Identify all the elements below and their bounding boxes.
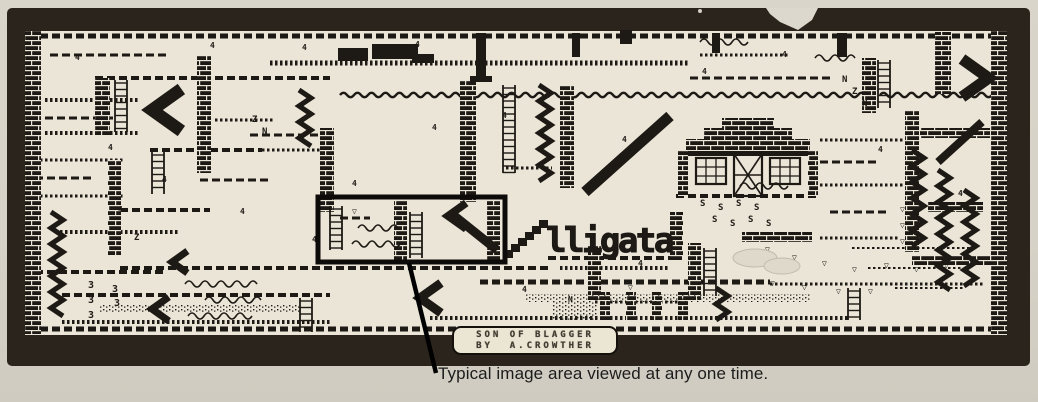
collectible-icon: ▽	[836, 287, 841, 296]
map-glyph: 3	[88, 310, 94, 321]
house-roof-step	[722, 118, 774, 129]
title-badge: SON OF BLAGGER BY A.CROWTHER	[452, 326, 618, 355]
map-glyph: N	[862, 99, 867, 109]
block	[372, 44, 418, 59]
map-glyph: 4	[522, 285, 527, 294]
map-glyph: 3	[114, 298, 120, 309]
map-glyph: 4	[622, 135, 627, 144]
alligata-logo-text: lligata	[546, 221, 673, 261]
map-glyph: S	[748, 215, 753, 225]
block	[476, 33, 486, 79]
map-glyph: 4	[240, 207, 245, 216]
block	[412, 54, 434, 63]
collectible-icon: ▽	[352, 207, 357, 216]
map-glyph: Z	[252, 115, 258, 125]
map-glyph: 4	[75, 53, 80, 62]
brick-column	[935, 32, 951, 94]
map-glyph: 4	[782, 50, 787, 59]
brick-column	[25, 31, 41, 334]
map-glyph: N	[568, 295, 573, 304]
map-glyph: 4	[432, 123, 437, 132]
scanned-map-page: ▽▽▽▽▽▽▽▽▽▽▽▽▽▽▽▽SSSSSSSSZNNZNZN333334444…	[0, 0, 1038, 402]
rubble-texture	[100, 304, 300, 313]
map-glyph: Z	[852, 87, 858, 97]
house-roof-step	[686, 139, 810, 152]
map-glyph: S	[718, 203, 723, 213]
map-glyph: 4	[702, 67, 707, 76]
map-glyph: 3	[112, 284, 118, 295]
collectible-icon: ▽	[900, 205, 905, 214]
house-wall	[678, 151, 688, 196]
block	[338, 48, 368, 61]
map-glyph: 4	[118, 205, 123, 214]
brick-column	[197, 55, 211, 173]
brick-column	[95, 78, 110, 136]
collectible-icon: ▽	[628, 283, 633, 292]
paper-speck	[698, 9, 702, 13]
map-glyph: 4	[210, 41, 215, 50]
map-glyph: N	[262, 127, 267, 137]
house-roof-step	[704, 128, 792, 140]
collectible-icon: ▽	[900, 237, 905, 246]
map-glyph: 4	[502, 111, 507, 120]
block	[470, 76, 492, 82]
block	[837, 33, 847, 57]
collectible-icon: ▽	[868, 287, 873, 296]
map-glyph: S	[754, 203, 759, 213]
paper-emboss	[764, 258, 800, 274]
title-badge-line2: BY A.CROWTHER	[476, 341, 594, 352]
map-glyph: 3	[88, 295, 94, 306]
brick-column	[394, 200, 407, 260]
collectible-icon: ▽	[770, 279, 775, 288]
map-glyph: 4	[878, 145, 883, 154]
collectible-icon: ▽	[822, 259, 827, 268]
map-glyph: 4	[108, 143, 113, 152]
collectible-icon: ▽	[914, 265, 919, 274]
title-badge-line1: SON OF BLAGGER	[476, 330, 594, 341]
map-glyph: S	[700, 199, 705, 209]
house-wall	[808, 151, 818, 196]
map-glyph: 3	[88, 280, 94, 291]
map-glyph: S	[736, 199, 741, 209]
block	[572, 33, 580, 57]
map-glyph: 4	[415, 40, 420, 49]
map-glyph: 4	[958, 189, 963, 198]
map-glyph: Z	[134, 233, 140, 243]
collectible-icon: ▽	[944, 261, 949, 270]
brick-bar	[742, 232, 812, 242]
map-glyph: 4	[162, 175, 167, 184]
brick-column	[670, 212, 683, 260]
map-glyph: 4	[302, 43, 307, 52]
collectible-icon: ▽	[802, 283, 807, 292]
rubble-texture	[552, 300, 598, 320]
caption-text: Typical image area viewed at any one tim…	[438, 364, 768, 384]
map-glyph: N	[842, 75, 847, 85]
brick-column	[688, 243, 701, 300]
collectible-icon: ▽	[884, 261, 889, 270]
map-glyph: S	[730, 219, 735, 229]
brick-column	[560, 85, 574, 188]
map-glyph: S	[766, 219, 771, 229]
collectible-icon: ▽	[852, 265, 857, 274]
map-glyph: 4	[352, 179, 357, 188]
brick-column	[460, 80, 476, 202]
collectible-icon: ▽	[900, 221, 905, 230]
map-glyph: S	[712, 215, 717, 225]
block	[620, 30, 632, 44]
